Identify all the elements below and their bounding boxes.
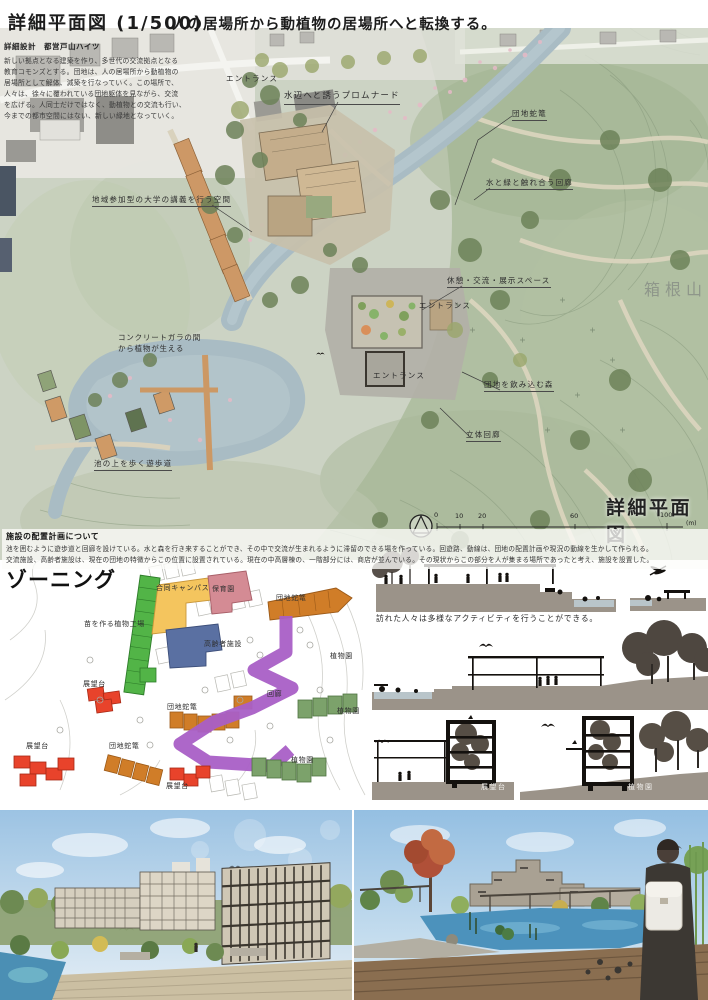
intro-text: 詳細設計 都営戸山ハイツ 新しい拠点となる建築を作り、多世代の交流拠点となる 教… bbox=[4, 41, 169, 122]
plan-label-water-green-corridor: 水と緑と触れ合う回廊 bbox=[486, 177, 573, 190]
zoning-label-gabion-2: 団地蛇篭 bbox=[167, 702, 197, 712]
zoning-label-campus: 合同キャンパス bbox=[156, 583, 209, 593]
intro-line: 新しい拠点となる建築を作り、多世代の交流拠点となる bbox=[4, 56, 169, 67]
zoning-label-lookout-2: 展望台 bbox=[26, 741, 49, 751]
zoning-label-botanical-3: 植物園 bbox=[291, 755, 314, 765]
bird-icon bbox=[479, 644, 493, 647]
zoning-label-plant-factory: 苗を作る植物工場 bbox=[84, 619, 145, 629]
zoning-label-gabion-1: 団地蛇篭 bbox=[276, 593, 306, 603]
board-artwork bbox=[0, 0, 708, 1000]
intro-line: 人々は、徐々に覆われている団地躯体を見ながら、交流 bbox=[4, 89, 169, 100]
plan-label-rest-space: 休憩・交流・展示スペース bbox=[447, 275, 551, 288]
section-garden-label: 植物園 bbox=[628, 782, 654, 792]
section-tower-label: 展望台 bbox=[481, 782, 507, 792]
plan-label-promenade: 水辺へと誘うプロムナード bbox=[284, 90, 400, 105]
placement-line: 池を囲むように遊歩道と回廊を設けている。水と森を行き来することができ、その中で交… bbox=[6, 544, 708, 555]
zoning-label-botanical-2: 植物園 bbox=[337, 706, 360, 716]
zoning-title: ゾーニング bbox=[6, 564, 116, 594]
plan-label-university-space: 地域参加型の大学の講義を行う空間 bbox=[92, 194, 231, 207]
plan-label-pond-walk: 池の上を歩く遊歩道 bbox=[94, 458, 172, 471]
intro-line: 居場所として解体、減築を行なっていく。この場所で、 bbox=[4, 78, 169, 89]
intro-heading: 詳細設計 都営戸山ハイツ bbox=[4, 41, 169, 53]
zoning-label-botanical-1: 植物園 bbox=[330, 651, 353, 661]
plan-label-solid-corridor: 立体回廊 bbox=[466, 429, 501, 442]
zoning-label-lookout-1: 展望台 bbox=[83, 679, 106, 689]
section-caption: 訪れた人々は多様なアクティビティを行うことができる。 bbox=[376, 613, 598, 624]
plan-label-entrance-1: エントランス bbox=[226, 73, 278, 84]
section-pergola-grove bbox=[372, 620, 708, 710]
zoning-label-gabion-3: 団地蛇篭 bbox=[109, 741, 139, 751]
zoning-label-elderly: 高齢者施設 bbox=[204, 639, 242, 649]
intro-line: 教育コモンズとする。団地は、人の居場所から動植物の bbox=[4, 67, 169, 78]
presentation-board: 詳細平面図 (1/500) 人の居場所から動植物の居場所へと転換する。 詳細設計… bbox=[0, 0, 708, 1000]
scale-tick: 100 bbox=[660, 511, 672, 519]
scale-tick: 0 bbox=[434, 511, 438, 519]
intro-line: 今までの都市空間にはない、新しい緑地となっていく。 bbox=[4, 111, 169, 122]
placement-heading: 施設の配置計画について bbox=[6, 531, 708, 542]
scale-tick: 60 bbox=[570, 512, 578, 520]
plan-label-entrance-3: エントランス bbox=[373, 370, 425, 381]
plan-label-entrance-2: エントランス bbox=[419, 300, 471, 311]
bird-icon bbox=[541, 724, 555, 727]
scale-tick: 20 bbox=[478, 512, 486, 520]
intro-line: を広げる。人同士だけではなく、動植物との交流も行い、 bbox=[4, 100, 169, 111]
mountain-label: 箱根山 bbox=[644, 276, 707, 300]
zoning-label-nursery: 保育園 bbox=[212, 584, 235, 594]
section-botanical-tower bbox=[520, 711, 708, 800]
plan-label-gabion: 団地蛇篭 bbox=[512, 108, 547, 121]
zoning-label-lookout-3: 展望台 bbox=[166, 781, 189, 791]
scale-unit: (m) bbox=[686, 520, 697, 527]
section-bench bbox=[630, 565, 706, 611]
zoning-label-corridor: 回廊 bbox=[267, 689, 282, 699]
page-subtitle: 人の居場所から動植物の居場所へと転換する。 bbox=[172, 13, 497, 34]
scale-tick: 10 bbox=[455, 512, 463, 520]
plan-label-forest: 団地を飲み込む森 bbox=[484, 379, 554, 392]
plan-label-concrete-rubble: コンクリートガラの間 から植物が生える bbox=[118, 332, 201, 355]
